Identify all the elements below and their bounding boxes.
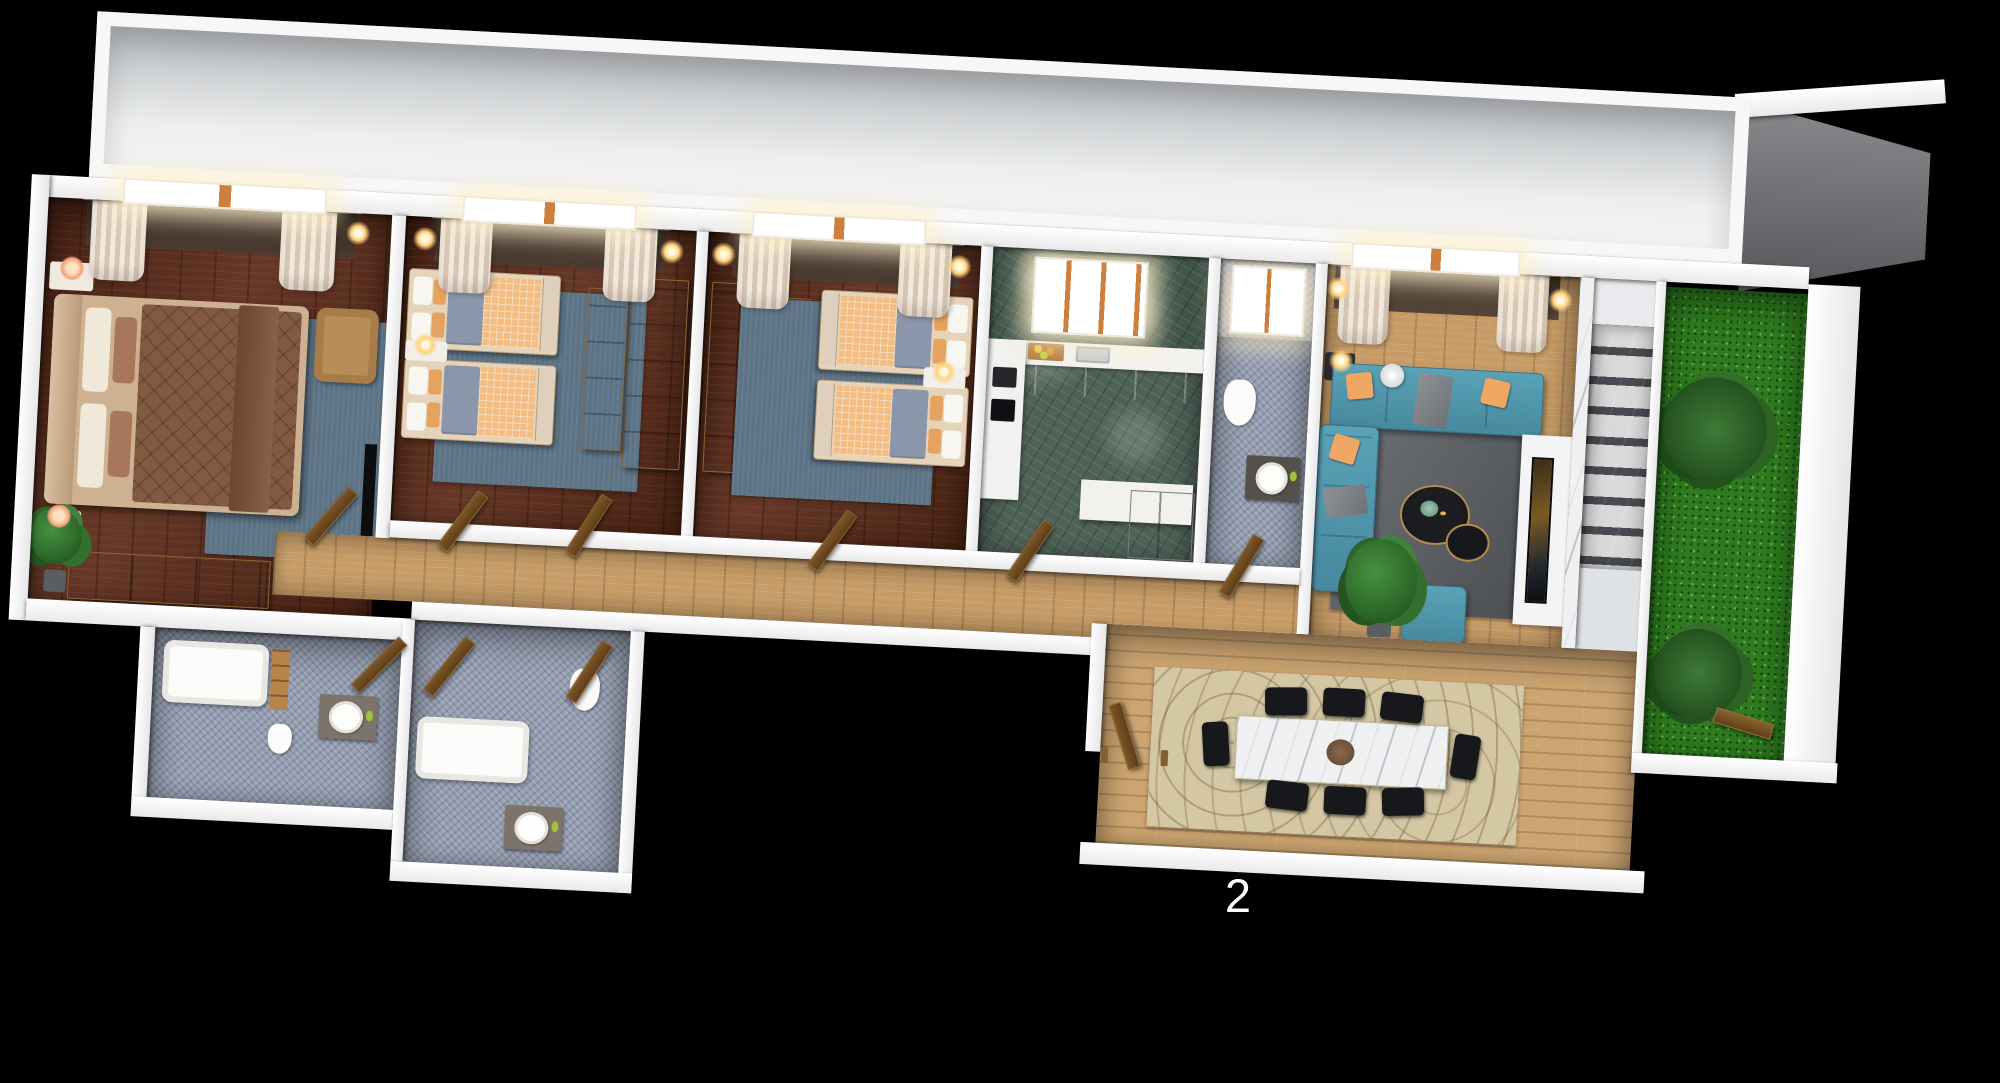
curtain <box>278 209 337 292</box>
curtain <box>437 218 493 295</box>
palm-plant <box>1660 375 1769 484</box>
refrigerator <box>1127 490 1194 561</box>
curtain <box>1337 265 1391 346</box>
gray-throw <box>1323 484 1368 519</box>
stair-landing <box>1592 278 1658 327</box>
flower-vase <box>1420 500 1439 517</box>
centerpiece <box>1326 739 1355 766</box>
cooktop <box>990 399 1015 422</box>
dining-chair <box>1322 687 1365 717</box>
kitchen-sink <box>1076 346 1111 364</box>
floor-number-label: 2 <box>1203 868 1273 923</box>
toilet <box>267 723 293 754</box>
dining-chair <box>1323 786 1366 816</box>
kitchen <box>977 246 1209 562</box>
floorplan-3d-render <box>0 0 2000 1083</box>
vessel-sink <box>328 700 364 734</box>
dining-chair <box>1265 687 1307 715</box>
door-frame-post <box>1101 747 1109 763</box>
bathtub <box>161 640 269 707</box>
wall-sconce <box>659 239 684 264</box>
vanity <box>318 694 378 741</box>
living-room <box>1309 264 1581 648</box>
bathtub <box>415 716 530 784</box>
sideboard <box>67 551 271 610</box>
wall-sconce <box>346 221 371 246</box>
double-bed <box>44 293 310 516</box>
bathroom-middle <box>1205 258 1316 568</box>
throw-pillow <box>1346 372 1374 400</box>
vessel-sink <box>1255 462 1289 496</box>
cutting-board <box>1028 342 1065 361</box>
open-shelf-unit <box>580 287 628 451</box>
dining-chair <box>1379 691 1424 724</box>
soap <box>551 821 559 832</box>
armchair <box>313 307 379 384</box>
soap <box>366 710 374 721</box>
pillow <box>112 317 137 384</box>
dining-chair <box>1382 787 1424 816</box>
garden-gate <box>1712 707 1774 740</box>
bedroom-2 <box>390 216 697 536</box>
plant-pot <box>43 569 66 592</box>
single-bed <box>401 358 557 446</box>
garden-courtyard <box>1642 287 1808 761</box>
soap <box>1290 471 1298 481</box>
dining-terrace <box>1095 624 1641 871</box>
bathroom-a <box>146 627 402 810</box>
vanity <box>503 805 563 852</box>
curtain <box>897 242 953 319</box>
kitchen-window <box>1031 257 1149 339</box>
door-frame-post <box>1160 750 1168 766</box>
dining-chair <box>1202 721 1230 766</box>
wall-sconce <box>947 254 972 279</box>
terrace-end-wall <box>1735 79 1946 118</box>
wood-shelf <box>269 649 290 710</box>
wardrobe <box>621 278 689 471</box>
stair-lower-landing <box>1575 568 1643 652</box>
single-bed <box>813 379 969 467</box>
vanity <box>1245 455 1301 502</box>
curtain <box>736 233 792 310</box>
pillow <box>82 307 112 392</box>
headboard <box>44 293 83 504</box>
oven <box>992 367 1017 388</box>
dining-chair <box>1265 779 1310 812</box>
bathroom-window <box>1229 265 1306 337</box>
toilet <box>1222 379 1256 427</box>
palm-plant <box>1652 627 1744 719</box>
curtain <box>1496 273 1550 354</box>
dining-table <box>1234 715 1449 790</box>
curtain <box>602 226 658 303</box>
curtain <box>88 199 147 282</box>
bedroom-3 <box>693 232 982 551</box>
vessel-sink <box>514 811 550 845</box>
wall-sconce <box>1548 288 1573 313</box>
